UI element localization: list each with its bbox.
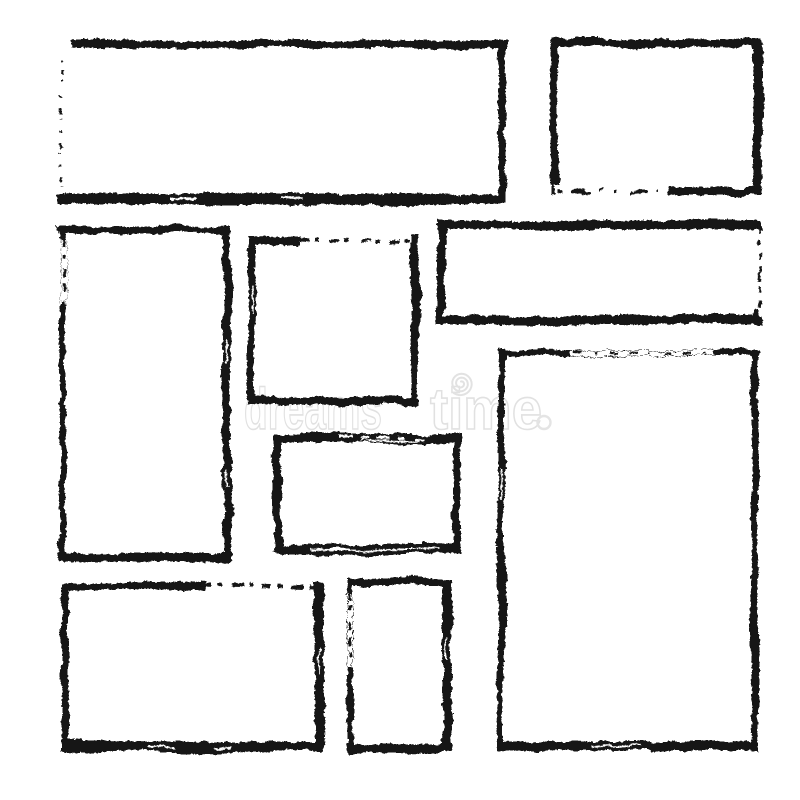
svg-text:time: time xyxy=(430,377,542,442)
svg-text:dreams: dreams xyxy=(244,377,382,442)
